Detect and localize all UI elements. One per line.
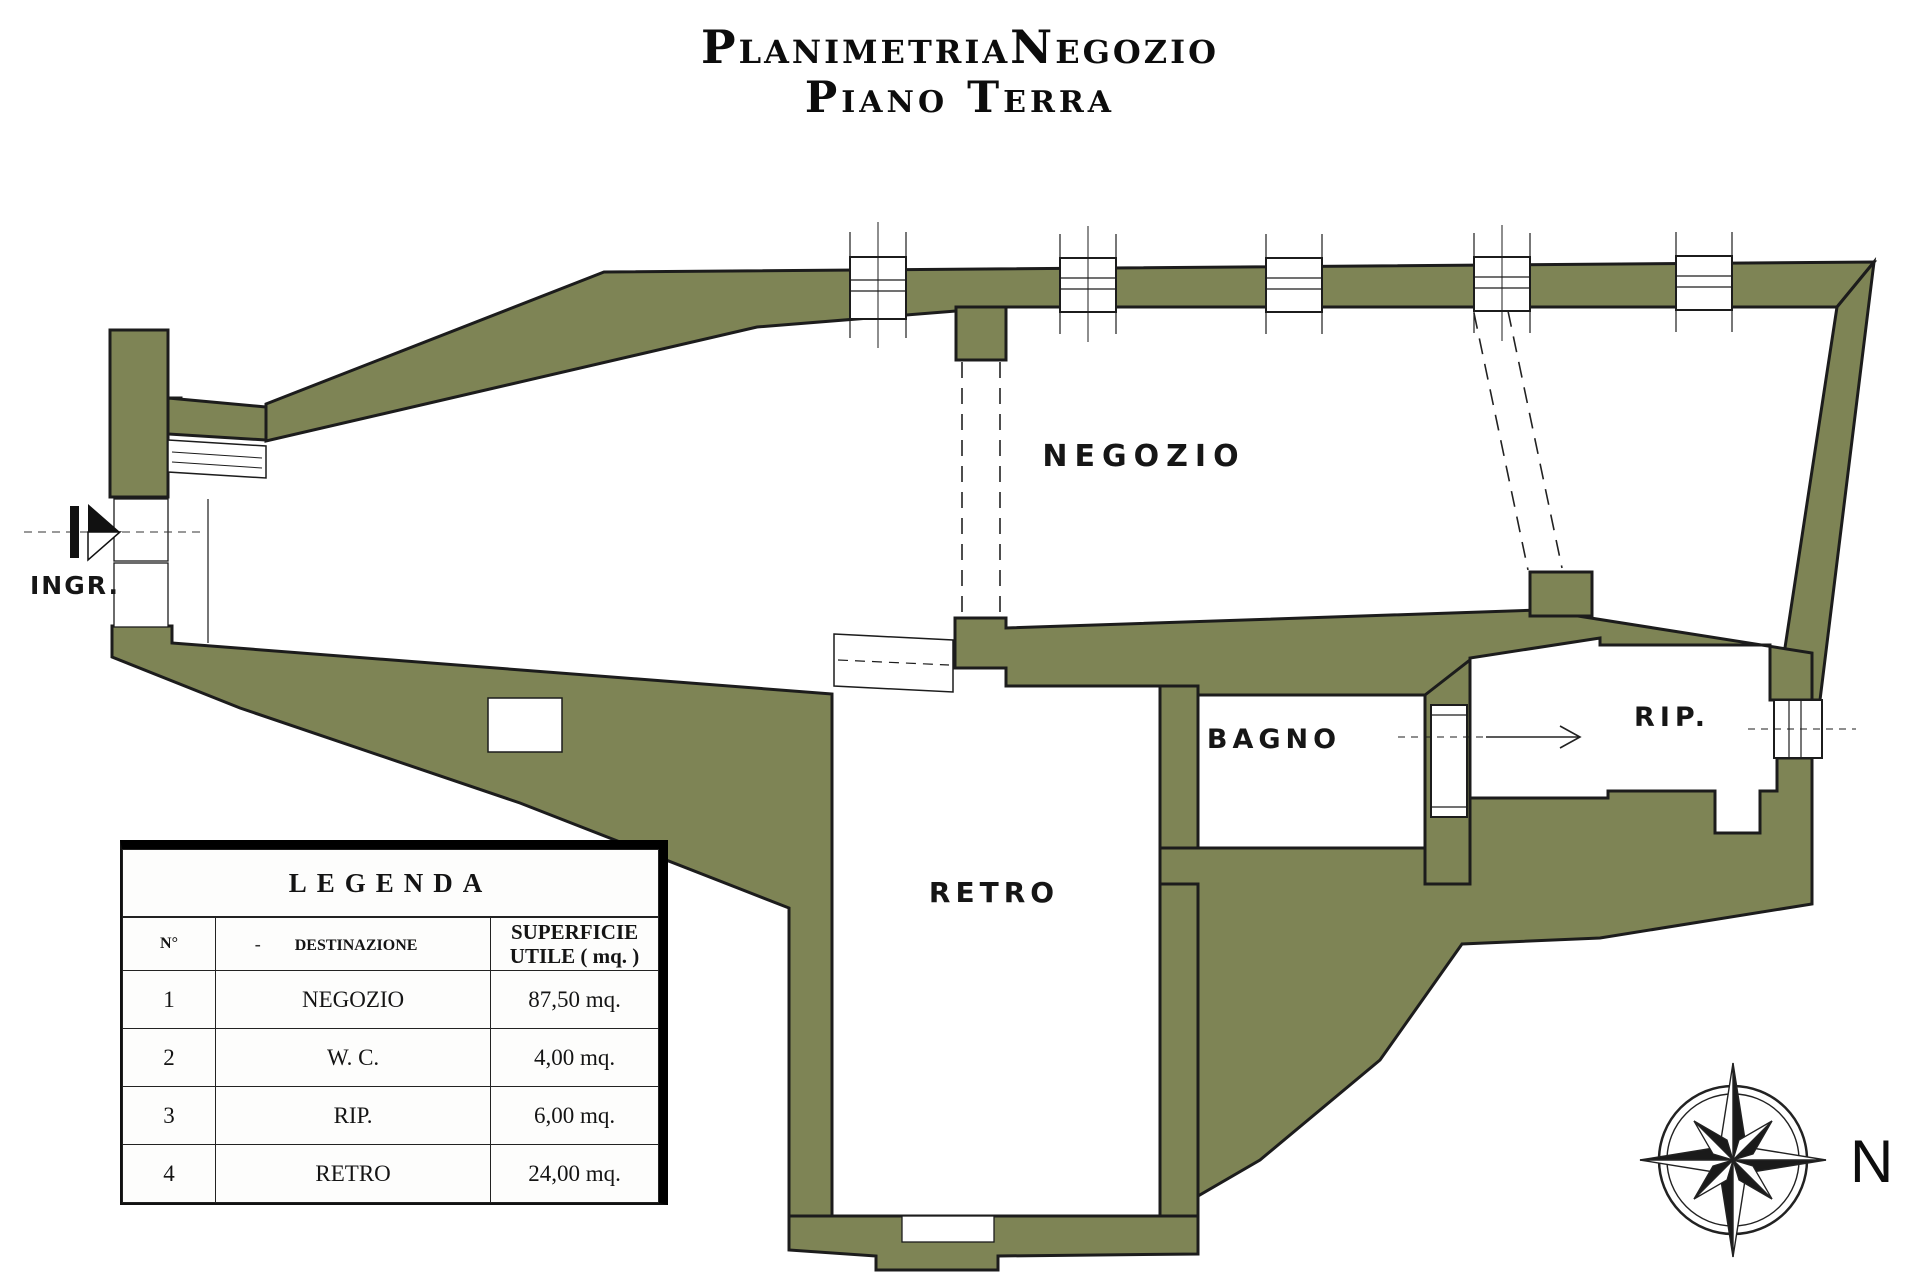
room-label-rip: RIP. bbox=[1634, 702, 1710, 733]
door-recess-retro bbox=[902, 1216, 994, 1242]
wall-retro-right bbox=[1160, 628, 1198, 1216]
room-label-bagno: BAGNO bbox=[1207, 724, 1341, 755]
legend-col-n: N° bbox=[123, 917, 216, 971]
legend-cell-dest: W. C. bbox=[216, 1029, 491, 1087]
window-corridor-south bbox=[488, 698, 562, 752]
window-top-4 bbox=[1474, 225, 1530, 341]
legend-cell-n: 1 bbox=[123, 971, 216, 1029]
legend-col-destinazione-label: DESTINAZIONE bbox=[295, 937, 418, 954]
legend-cell-n: 2 bbox=[123, 1029, 216, 1087]
wall-t-pier bbox=[956, 307, 1006, 360]
room-label-retro: RETRO bbox=[929, 876, 1059, 909]
window-top-3 bbox=[1266, 234, 1322, 334]
legend-row-retro: 4 RETRO 24,00 mq. bbox=[123, 1145, 659, 1203]
wall-left-pier bbox=[168, 398, 266, 440]
legend-col-destinazione: -DESTINAZIONE bbox=[216, 917, 491, 971]
legend-table: LEGENDA N° -DESTINAZIONE SUPERFICIE UTIL… bbox=[120, 840, 668, 1205]
legend-cell-sup: 24,00 mq. bbox=[491, 1145, 659, 1203]
entrance-door-panel-upper bbox=[114, 499, 168, 561]
wall-southeast-mass bbox=[1160, 758, 1812, 1196]
room-label-ingresso: INGR. bbox=[30, 571, 120, 600]
compass-north-label: N bbox=[1850, 1128, 1893, 1195]
room-label-negozio: NEGOZIO bbox=[1042, 439, 1245, 474]
floor-plan-page: PlanimetriaNegozio Piano Terra bbox=[0, 0, 1920, 1280]
window-top-5 bbox=[1676, 232, 1732, 332]
compass-rose-icon bbox=[1640, 1063, 1826, 1257]
partition-right-b bbox=[1508, 311, 1562, 568]
window-left-pier bbox=[168, 440, 266, 478]
legend-header-row: N° -DESTINAZIONE SUPERFICIE UTILE ( mq. … bbox=[123, 917, 659, 971]
legend-cell-n: 3 bbox=[123, 1087, 216, 1145]
window-top-2 bbox=[1060, 226, 1116, 342]
wall-negozio-bottom-band bbox=[955, 610, 1812, 700]
legend-cell-sup: 6,00 mq. bbox=[491, 1087, 659, 1145]
partition-right-a bbox=[1474, 313, 1528, 570]
legend-header-dash: - bbox=[255, 934, 261, 954]
door-bagno bbox=[1431, 705, 1467, 817]
legend-row-wc: 2 W. C. 4,00 mq. bbox=[123, 1029, 659, 1087]
legend-row-negozio: 1 NEGOZIO 87,50 mq. bbox=[123, 971, 659, 1029]
wall-right bbox=[1777, 262, 1874, 700]
legend-cell-n: 4 bbox=[123, 1145, 216, 1203]
legend-cell-dest: NEGOZIO bbox=[216, 971, 491, 1029]
wall-partition-pier bbox=[1530, 572, 1592, 616]
legend-cell-sup: 4,00 mq. bbox=[491, 1029, 659, 1087]
entrance-door-panel-lower bbox=[114, 563, 168, 627]
legend-title: LEGENDA bbox=[123, 850, 659, 918]
window-top-1 bbox=[850, 222, 906, 348]
legend-cell-dest: RIP. bbox=[216, 1087, 491, 1145]
rip-corridor-arrow bbox=[1486, 726, 1580, 748]
legend-cell-sup: 87,50 mq. bbox=[491, 971, 659, 1029]
entrance-arrow bbox=[24, 504, 200, 560]
legend-col-superficie: SUPERFICIE UTILE ( mq. ) bbox=[491, 917, 659, 971]
legend-cell-dest: RETRO bbox=[216, 1145, 491, 1203]
legend-row-rip: 3 RIP. 6,00 mq. bbox=[123, 1087, 659, 1145]
